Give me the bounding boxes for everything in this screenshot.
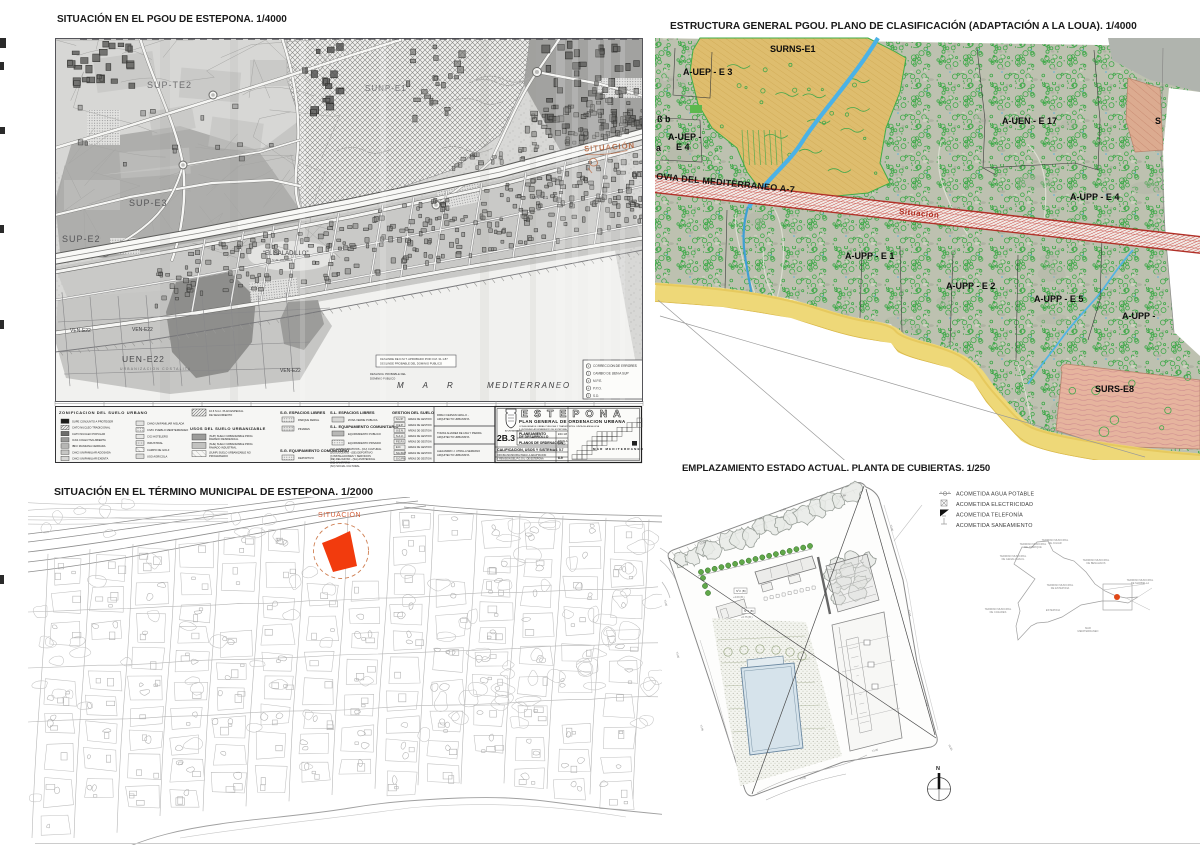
svg-text:73.95: 73.95 — [699, 724, 705, 732]
svg-text:USOS DEL SUELO URBANIZABLE: USOS DEL SUELO URBANIZABLE — [190, 426, 266, 431]
svg-text:CHTO NUCLEO TRADICIONAL: CHTO NUCLEO TRADICIONAL — [72, 426, 111, 430]
svg-text:CHTO NUCLEO POPULAR: CHTO NUCLEO POPULAR — [72, 432, 105, 436]
svg-text:ACOMETIDA ELECTRICIDAD: ACOMETIDA ELECTRICIDAD — [956, 502, 1033, 508]
svg-text:DESLINDE DE D.M.T. APROBADO PO: DESLINDE DE D.M.T. APROBADO POR O.M. 31.… — [380, 357, 448, 361]
svg-text:VEN-E22: VEN-E22 — [280, 368, 301, 374]
svg-text:S.A.U.: S.A.U. — [396, 434, 404, 438]
svg-text:E.D.: E.D. — [396, 445, 401, 449]
svg-text:(SO) SOCIAL CULTURAL: (SO) SOCIAL CULTURAL — [330, 464, 360, 468]
svg-text:AREAS DE GESTION: AREAS DE GESTION — [408, 441, 432, 444]
svg-text:(RE) RELIGIOSO - (SA) ASISTENC: (RE) RELIGIOSO - (SA) ASISTENCIAL — [330, 457, 376, 461]
svg-text:PLANOS DE ORDENACION: PLANOS DE ORDENACION — [519, 441, 563, 445]
svg-text:PABLO CERVAN GRILLO -: PABLO CERVAN GRILLO - — [437, 413, 469, 417]
svg-text:DE ESTEPONA: DE ESTEPONA — [1051, 586, 1070, 590]
svg-text:SITUACIÓN EN EL TÉRMINO MUNICI: SITUACIÓN EN EL TÉRMINO MUNICIPAL DE EST… — [54, 485, 373, 498]
svg-text:CHAD UNIFAMILIAR AISLADA: CHAD UNIFAMILIAR AISLADA — [147, 421, 184, 425]
svg-text:ILUSTRISIMO AYUNTAMIENTO: ILUSTRISIMO AYUNTAMIENTO DE ESTEPONA — [519, 428, 567, 431]
svg-text:ACOMETIDA TELEFONÍA: ACOMETIDA TELEFONÍA — [956, 512, 1023, 519]
svg-text:(I) INSTALACIONES Y SERVICIOS: (I) INSTALACIONES Y SERVICIOS — [330, 454, 371, 458]
svg-text:ESTEPONA: ESTEPONA — [1046, 608, 1060, 612]
svg-text:ARQUITECTO URBANISTA: ARQUITECTO URBANISTA — [437, 453, 470, 457]
svg-text:AREAS DE GESTION: AREAS DE GESTION — [408, 457, 432, 460]
svg-text:AREAS DE GESTION: AREAS DE GESTION — [408, 418, 432, 421]
svg-text:SITUACIÓN: SITUACIÓN — [318, 510, 361, 519]
svg-text:S.L. EQUIPAMIENTO COMUNITARIO: S.L. EQUIPAMIENTO COMUNITARIO — [330, 424, 398, 429]
svg-text:DESLINDE PROBABLE DEL DOMINIO: DESLINDE PROBABLE DEL DOMINIO PUBLICO — [380, 362, 443, 366]
svg-text:AREAS DE GESTION: AREAS DE GESTION — [408, 424, 432, 427]
svg-text:5.7: 5.7 — [559, 448, 564, 452]
svg-text:ACOMETIDA AGUA POTABLE: ACOMETIDA AGUA POTABLE — [956, 492, 1034, 498]
svg-text:SITUACIÓN EN EL PGOU DE ESTEPO: SITUACIÓN EN EL PGOU DE ESTEPONA. 1/4000 — [57, 12, 287, 25]
svg-text:73.95: 73.95 — [947, 744, 954, 752]
svg-text:AREAS DE GESTION: AREAS DE GESTION — [408, 429, 432, 432]
svg-text:CIVIC PUEBLO MEDITERRANEO: CIVIC PUEBLO MEDITERRANEO — [147, 428, 188, 432]
svg-text:AREAS DE GESTION: AREAS DE GESTION — [408, 452, 432, 455]
svg-text:CAMPO DE GOLF: CAMPO DE GOLF — [147, 448, 170, 452]
svg-text:A-UPP - E 1: A-UPP - E 1 — [845, 251, 894, 261]
svg-text:EMPLAZAMIENTO ESTADO ACTUAL. P: EMPLAZAMIENTO ESTADO ACTUAL. PLANTA DE C… — [682, 463, 990, 474]
svg-text:CALIFICACION, USOS Y SISTEMAS: CALIFICACION, USOS Y SISTEMAS — [497, 448, 558, 452]
svg-text:S.L. ESPACIOS LIBRES: S.L. ESPACIOS LIBRES — [330, 410, 375, 415]
svg-text:Nº2 (B): Nº2 (B) — [736, 589, 746, 593]
svg-text:U.E.P.: U.E.P. — [396, 423, 403, 427]
svg-text:DE BENAHAVIS: DE BENAHAVIS — [1087, 561, 1106, 565]
svg-text:ZONIFICACION DEL SUELO URBA: ZONIFICACION DEL SUELO URBANO — [59, 410, 148, 415]
svg-text:PINARES: PINARES — [298, 427, 310, 431]
svg-text:S: S — [1155, 116, 1161, 126]
svg-text:ICAS COLECTIVA ABIERTA: ICAS COLECTIVA ABIERTA — [72, 438, 106, 442]
svg-text:73.95: 73.95 — [889, 524, 895, 532]
svg-text:RAMADO RESIDENCIAL: RAMADO RESIDENCIAL — [209, 437, 239, 441]
svg-text:CONSEJERIA DE OBRAS PUBLICAS Y: CONSEJERIA DE OBRAS PUBLICAS Y TRANSPORT… — [519, 425, 600, 428]
svg-text:73.95: 73.95 — [663, 599, 669, 607]
svg-text:PARQUE FERIAL: PARQUE FERIAL — [298, 418, 320, 422]
svg-text:(SC) SANITARIO: (SC) SANITARIO — [330, 461, 350, 465]
svg-text:RAMADO INDUSTRIAL: RAMADO INDUSTRIAL — [209, 445, 237, 449]
svg-text:(DO) DOCENTE - (DE) DEPORTIVO: (DO) DOCENTE - (DE) DEPORTIVO — [330, 450, 373, 454]
svg-text:INDUSTRIAL: INDUSTRIAL — [147, 441, 163, 445]
svg-text:A-UEP -: A-UEP - — [668, 132, 701, 142]
svg-text:S.G.P.M.: S.G.P.M. — [396, 456, 406, 460]
svg-text:EQUIPAMIENTO PRIVADO: EQUIPAMIENTO PRIVADO — [348, 441, 381, 445]
svg-text:EQUIPAMIENTO PUBLICO: EQUIPAMIENTO PUBLICO — [348, 432, 381, 436]
svg-text:10.6 S.G.I. PLAN ESPECIAL: 10.6 S.G.I. PLAN ESPECIAL — [209, 409, 244, 413]
svg-text:DE CASARES: DE CASARES — [990, 610, 1007, 614]
svg-text:A-UPP -: A-UPP - — [1122, 311, 1155, 321]
svg-text:DE SEGUIMIENTO: DE SEGUIMIENTO — [209, 413, 232, 417]
svg-text:P.E.R.I.: P.E.R.I. — [396, 440, 405, 444]
svg-text:DESLINDE PROBABLE DEL: DESLINDE PROBABLE DEL — [370, 372, 407, 376]
svg-text:73.95: 73.95 — [675, 651, 681, 659]
svg-text:CHICI UNIFAMILIAR ADOSADA: CHICI UNIFAMILIAR ADOSADA — [72, 450, 111, 454]
svg-text:ACOMETIDA SANEAMIENTO: ACOMETIDA SANEAMIENTO — [956, 523, 1033, 529]
svg-text:UEN-E22: UEN-E22 — [122, 354, 165, 364]
svg-text:DE DESARROLLO: DE DESARROLLO — [519, 435, 549, 439]
svg-text:ZONA VERDE PUBLICA: ZONA VERDE PUBLICA — [348, 418, 378, 422]
svg-text:MAR: MAR — [397, 381, 472, 390]
svg-text:1/4000: 1/4000 — [558, 443, 566, 446]
svg-text:+6.75 (B.): +6.75 (B.) — [741, 615, 753, 619]
svg-text:A-UPP - E 2: A-UPP - E 2 — [946, 281, 995, 291]
svg-text:N: N — [936, 766, 940, 772]
svg-text:GESTION DEL SUELO: GESTION DEL SUELO — [392, 410, 434, 415]
svg-text:SUP-E2: SUP-E2 — [62, 234, 101, 244]
svg-text:ß b: ß b — [657, 114, 671, 124]
svg-text:IBICI MANZANA CERRADA: IBICI MANZANA CERRADA — [72, 444, 106, 448]
svg-text:+4.09 (B.): +4.09 (B.) — [733, 595, 745, 599]
svg-text:CICI HOTELERO: CICI HOTELERO — [147, 435, 168, 439]
svg-text:Y REVISION DEL P.G.O.U. DE EST: Y REVISION DEL P.G.O.U. DE ESTEPONA — [497, 458, 544, 461]
svg-text:MEDITERRANEO: MEDITERRANEO — [1078, 629, 1099, 633]
svg-text:SURNS-E1: SURNS-E1 — [770, 44, 816, 54]
svg-text:(AD) ADMINISTRATIVOS - (CU) CU: (AD) ADMINISTRATIVOS - (CU) CULTURAL — [330, 447, 382, 451]
svg-text:AREAS DE GESTION: AREAS DE GESTION — [408, 435, 432, 438]
svg-text:DE JUBRIQUE: DE JUBRIQUE — [1024, 545, 1042, 549]
svg-text:U.E.N.: U.E.N. — [396, 428, 404, 432]
svg-text:S.U.P.: S.U.P. — [396, 417, 403, 421]
svg-text:ESTRUCTURA GENERAL PGOU. PLANO: ESTRUCTURA GENERAL PGOU. PLANO DE CLASIF… — [670, 19, 1137, 32]
svg-text:PROGRAMADO: PROGRAMADO — [209, 454, 228, 458]
svg-text:URBANIZACION COSTALITA: URBANIZACION COSTALITA — [120, 367, 191, 371]
svg-text:DE MARBELLA: DE MARBELLA — [1131, 581, 1149, 585]
svg-text:A-UPP - E 5: A-UPP - E 5 — [1034, 294, 1083, 304]
svg-text:DE JULIAR: DE JULIAR — [1048, 541, 1061, 545]
svg-text:A-UEN - E 17: A-UEN - E 17 — [1002, 116, 1057, 126]
svg-text:A-UPP - E 4: A-UPP - E 4 — [1070, 192, 1119, 202]
svg-text:A-UEP - E 3: A-UEP - E 3 — [683, 67, 732, 77]
svg-text:ESC:1/8: ESC:1/8 — [558, 433, 568, 436]
svg-text:E 4: E 4 — [676, 142, 690, 152]
svg-text:2B.3: 2B.3 — [497, 433, 515, 443]
svg-text:SG-SUP: SG-SUP — [396, 451, 406, 455]
svg-text:ARQUITECTO URBANISTA: ARQUITECTO URBANISTA — [437, 435, 470, 439]
svg-text:6-9: 6-9 — [558, 456, 563, 460]
svg-text:TOMAS ALVAREZ DE LINA Y PIEDRA: TOMAS ALVAREZ DE LINA Y PIEDRA — [437, 431, 482, 435]
svg-text:S.G. ESPACIOS LIBRES: S.G. ESPACIOS LIBRES — [280, 410, 326, 415]
svg-text:DEPORTIVO: DEPORTIVO — [298, 456, 314, 460]
svg-text:ALEJANDRO J. UTRILLA SERRANO: ALEJANDRO J. UTRILLA SERRANO — [437, 449, 480, 453]
svg-text:AREAS DE GESTION: AREAS DE GESTION — [408, 446, 432, 449]
svg-text:PLAN GENERAL DE ORDENACION URB: PLAN GENERAL DE ORDENACION URBANA — [519, 419, 626, 424]
svg-text:CHICI UNIFAMILIAR EXENTA: CHICI UNIFAMILIAR EXENTA — [72, 457, 108, 461]
svg-text:SUPE CONJUNTO A PROTEGER: SUPE CONJUNTO A PROTEGER — [72, 419, 113, 423]
svg-text:S.UE-100-109-1: S.UE-100-109-1 — [272, 258, 293, 262]
svg-text:DE GENALGUACIL: DE GENALGUACIL — [1002, 557, 1025, 561]
svg-text:USO AGRICOLA: USO AGRICOLA — [147, 454, 168, 458]
svg-text:SURS-E8: SURS-E8 — [1095, 384, 1134, 394]
svg-text:MAR MEDITERRANEO: MAR MEDITERRANEO — [593, 447, 644, 451]
svg-text:ARQUITECTO URBANISTA: ARQUITECTO URBANISTA — [437, 417, 470, 421]
svg-text:VEN-E22: VEN-E22 — [70, 328, 91, 334]
svg-text:VEN-E22: VEN-E22 — [132, 327, 153, 333]
